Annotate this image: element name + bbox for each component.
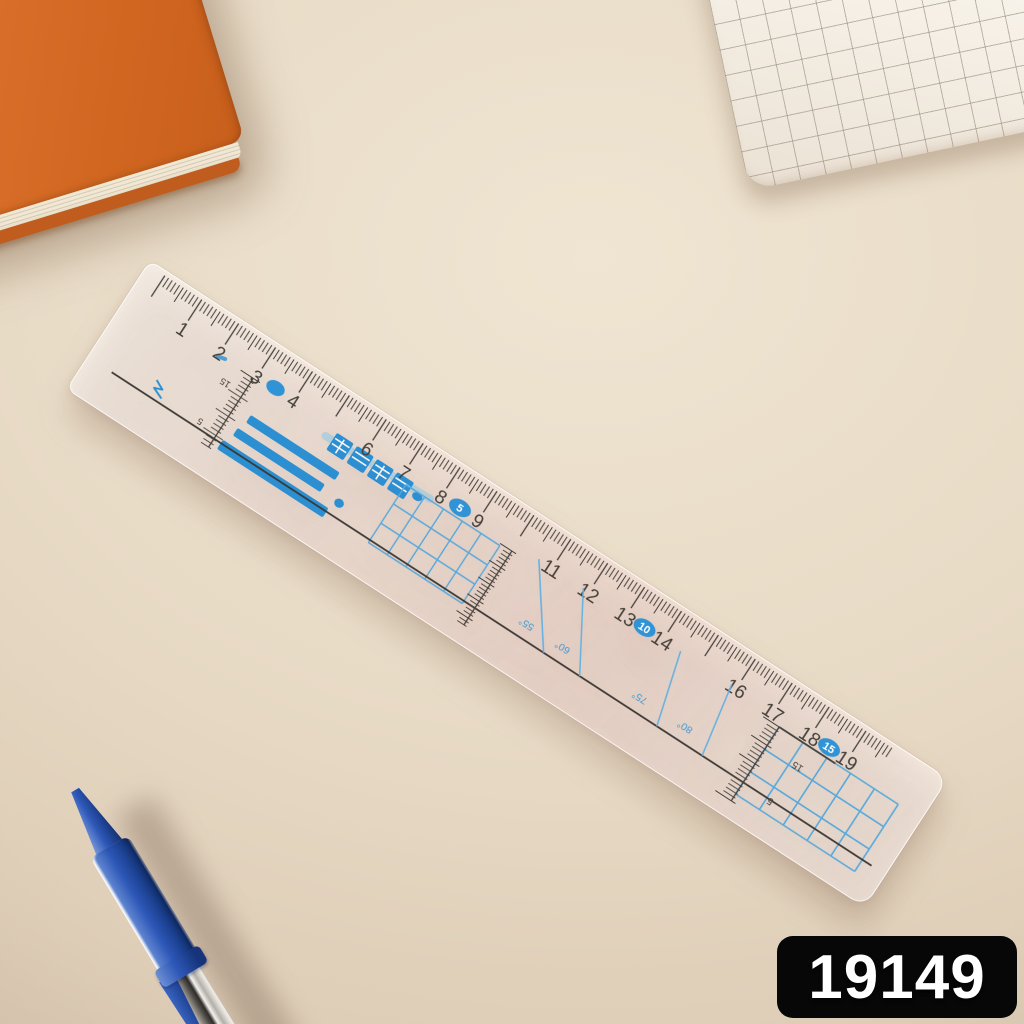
product-code-badge: 19149 xyxy=(777,936,1017,1018)
product-code-text: 19149 xyxy=(808,942,985,1013)
angle-label: 60° xyxy=(553,638,573,657)
ballpoint-pen xyxy=(48,774,355,1024)
product-photo-scene: 1234678911121314161718195101555°60°75°80… xyxy=(0,0,1024,1024)
orange-notebook xyxy=(0,0,253,284)
gauge-label: 15 xyxy=(790,758,806,774)
brand-logo xyxy=(143,332,438,563)
grid-notepad xyxy=(660,0,1024,191)
brand-dot xyxy=(332,497,345,510)
oval-marker xyxy=(263,377,287,400)
right-grid xyxy=(736,727,899,871)
gauge-label: 15 xyxy=(218,375,233,390)
angle-label: 55° xyxy=(517,614,537,633)
cm-number: 6 xyxy=(356,438,376,461)
cm-scale-ticks xyxy=(151,276,892,769)
brand-squiggle xyxy=(150,380,169,399)
baseline xyxy=(112,372,872,865)
gauge-label: 5 xyxy=(195,415,205,427)
cm-number: 4 xyxy=(282,390,303,414)
angle-guides: 55°60°75°80° xyxy=(497,559,743,756)
cm-number: 17 xyxy=(758,699,787,728)
cm-number: 11 xyxy=(537,556,565,584)
gauge-label: 5 xyxy=(765,794,776,806)
angle-line xyxy=(639,651,698,726)
cm-number: 1 xyxy=(172,319,192,342)
ruler-markings: 1234678911121314161718195101555°60°75°80… xyxy=(68,261,948,906)
left-grid xyxy=(368,485,500,604)
cm-number: 2 xyxy=(209,342,229,365)
ruler: 1234678911121314161718195101555°60°75°80… xyxy=(66,260,948,908)
angle-label: 80° xyxy=(675,717,695,736)
angle-label: 75° xyxy=(630,688,650,707)
cm-number: 12 xyxy=(573,579,602,608)
